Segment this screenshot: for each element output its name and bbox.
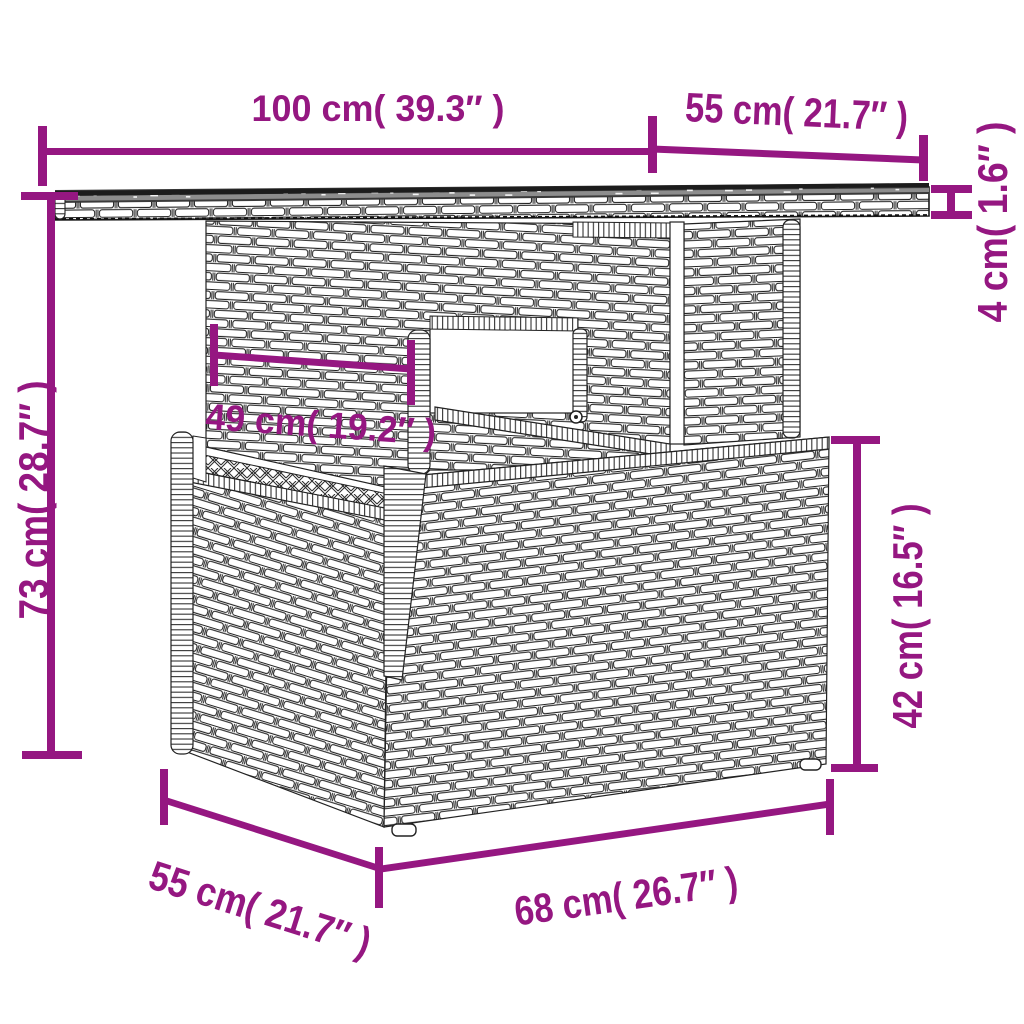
svg-text:42 cm( 16.5″ ): 42 cm( 16.5″ ) <box>884 504 931 729</box>
svg-text:4 cm( 1.6″ ): 4 cm( 1.6″ ) <box>969 122 1016 323</box>
svg-text:73 cm( 28.7″ ): 73 cm( 28.7″ ) <box>10 381 57 620</box>
svg-text:55 cm( 21.7″ ): 55 cm( 21.7″ ) <box>684 84 909 140</box>
svg-text:100 cm( 39.3″ ): 100 cm( 39.3″ ) <box>252 88 505 129</box>
